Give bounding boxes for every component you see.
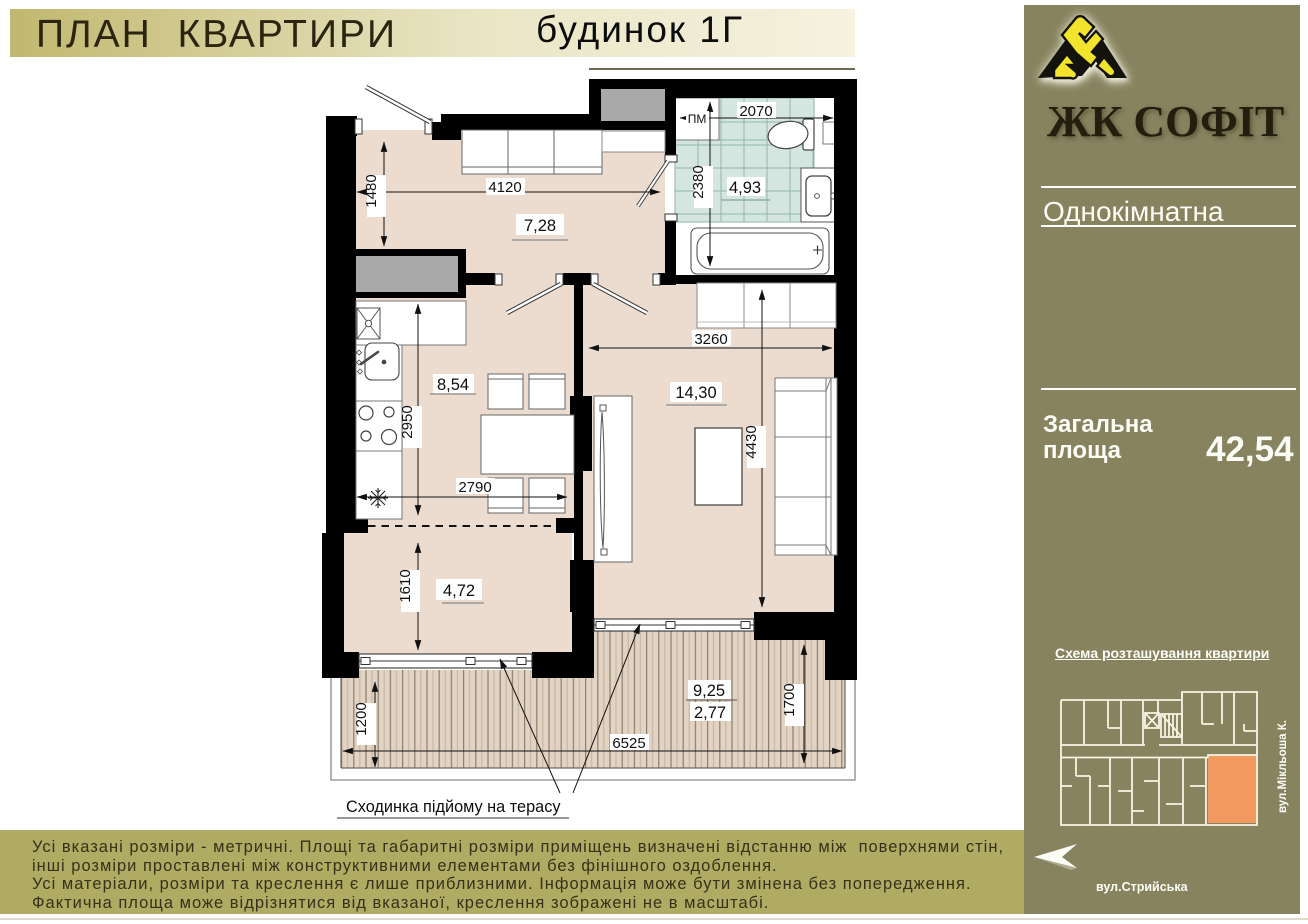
svg-text:1200: 1200 <box>353 702 370 735</box>
svg-text:4,93: 4,93 <box>729 179 761 197</box>
svg-text:14,30: 14,30 <box>675 384 716 402</box>
svg-text:7,28: 7,28 <box>524 217 556 235</box>
svg-text:4430: 4430 <box>743 425 760 458</box>
svg-text:6525: 6525 <box>612 735 645 752</box>
svg-text:8,54: 8,54 <box>437 376 469 394</box>
svg-text:4,72: 4,72 <box>443 582 475 600</box>
svg-text:1700: 1700 <box>781 683 798 716</box>
svg-text:1480: 1480 <box>363 174 380 207</box>
svg-text:1610: 1610 <box>397 569 414 602</box>
svg-text:9,25: 9,25 <box>693 682 725 700</box>
svg-text:ПМ: ПМ <box>688 112 707 126</box>
svg-text:2070: 2070 <box>739 103 772 120</box>
svg-text:2950: 2950 <box>399 405 416 438</box>
svg-text:4120: 4120 <box>488 179 521 196</box>
svg-text:2790: 2790 <box>458 479 491 496</box>
svg-text:Сходинка підйому на терасу: Сходинка підйому на терасу <box>346 798 561 816</box>
svg-text:2380: 2380 <box>690 165 707 198</box>
svg-text:2,77: 2,77 <box>694 704 726 722</box>
svg-text:3260: 3260 <box>694 331 727 348</box>
